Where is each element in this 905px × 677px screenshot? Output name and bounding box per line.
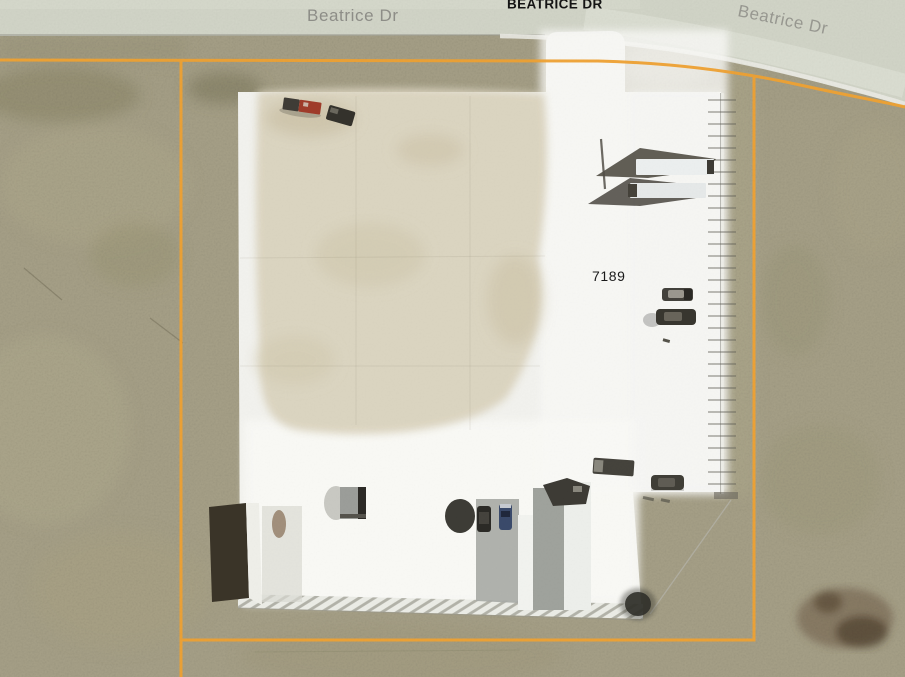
photo-grain-overlay: [0, 0, 905, 677]
aerial-map-viewport[interactable]: Beatrice Dr BEATRICE DR Beatrice Dr 7189: [0, 0, 905, 677]
road-label-left: Beatrice Dr: [307, 6, 399, 25]
parcel-number-label: 7189: [592, 268, 626, 284]
road-label-center: BEATRICE DR: [507, 0, 603, 12]
